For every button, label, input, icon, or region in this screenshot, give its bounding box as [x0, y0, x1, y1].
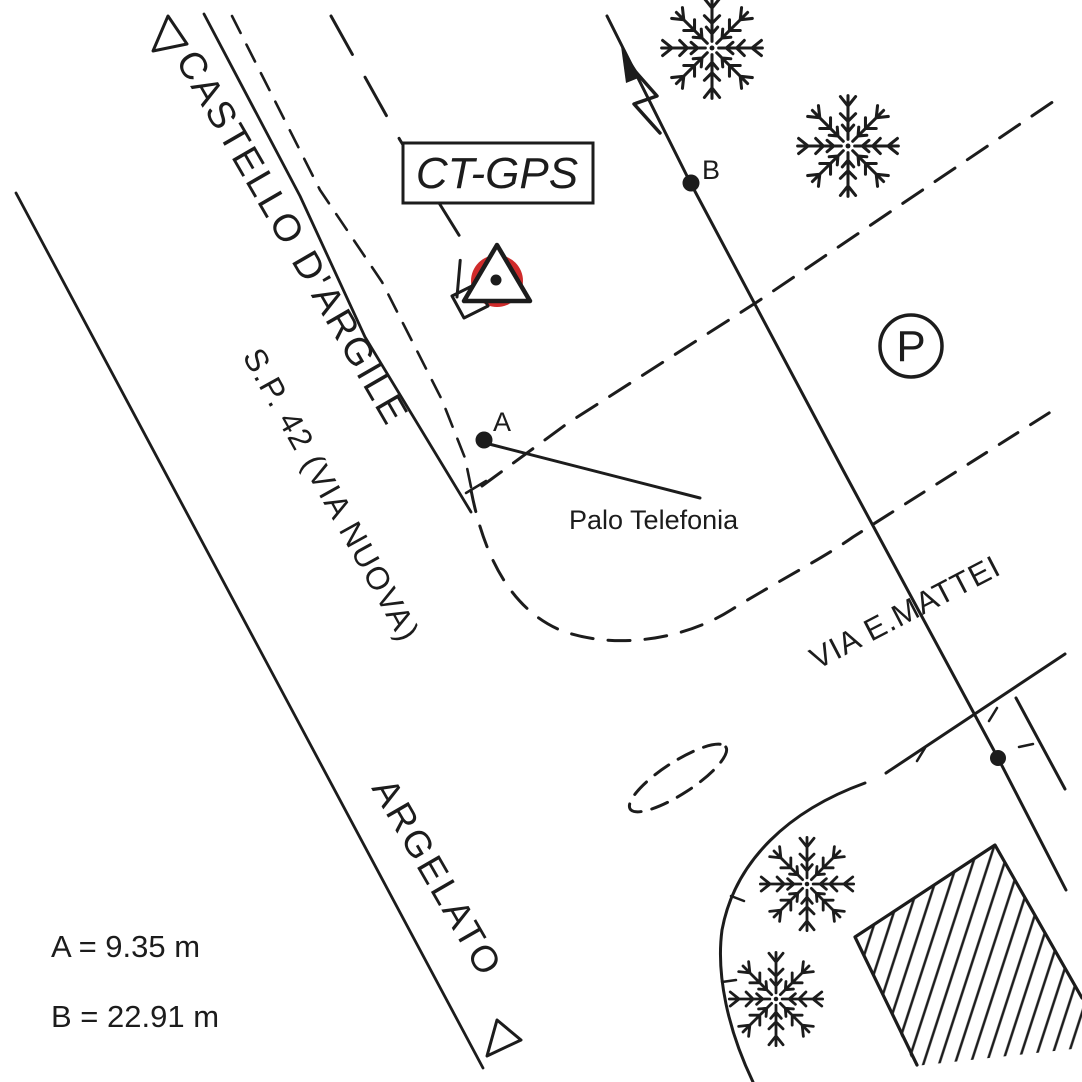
station-dot — [491, 275, 502, 286]
distance-note-a: A = 9.35 m — [51, 929, 200, 964]
ct-gps-label: CT-GPS — [416, 149, 578, 198]
distance-note-b: B = 22.91 m — [51, 999, 219, 1034]
point-a-label: A — [493, 407, 511, 437]
tree-symbol — [798, 96, 899, 197]
via-mattei-node-dot — [990, 750, 1006, 766]
tree-symbol — [662, 0, 763, 98]
point-a-dot — [476, 432, 493, 449]
tree-symbol — [729, 952, 822, 1045]
station-label-box: CT-GPS — [403, 143, 593, 203]
site-sketch-map: P A B Palo Telefonia CT-GPS CASTELLO D'A… — [0, 0, 1082, 1082]
point-b-dot — [683, 175, 700, 192]
tree-symbol — [760, 837, 853, 930]
point-b-label: B — [702, 155, 720, 185]
parking-symbol-letter: P — [896, 322, 925, 371]
palo-telefonia-label: Palo Telefonia — [569, 505, 739, 535]
